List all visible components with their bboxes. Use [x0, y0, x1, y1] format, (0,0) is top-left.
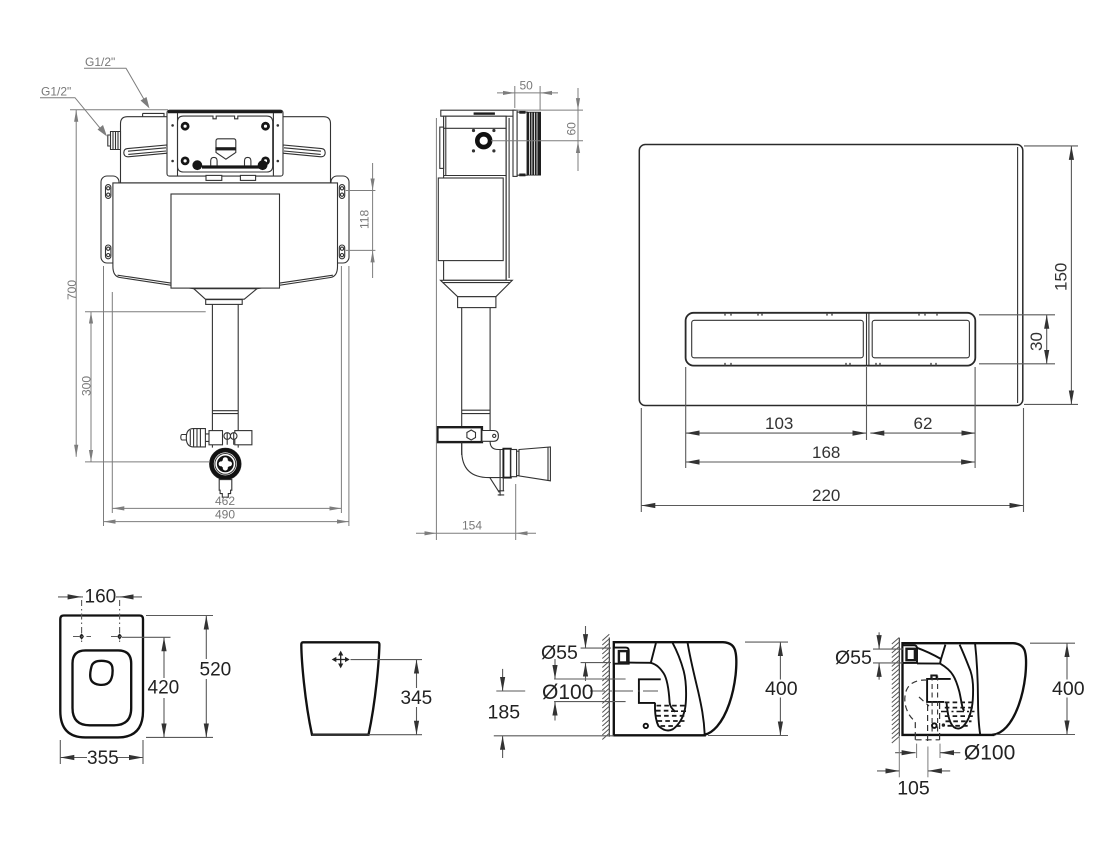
svg-text:154: 154: [462, 519, 482, 533]
svg-text:462: 462: [215, 494, 235, 508]
svg-text:420: 420: [148, 678, 180, 699]
svg-text:400: 400: [1052, 678, 1085, 700]
svg-text:Ø100: Ø100: [542, 681, 593, 704]
svg-text:30: 30: [1027, 332, 1046, 351]
svg-text:300: 300: [80, 376, 94, 396]
svg-text:62: 62: [914, 414, 933, 433]
svg-text:520: 520: [200, 660, 232, 681]
svg-text:220: 220: [812, 486, 840, 505]
svg-text:160: 160: [85, 587, 117, 608]
svg-text:490: 490: [215, 508, 235, 522]
svg-text:150: 150: [1052, 263, 1071, 291]
svg-text:Ø55: Ø55: [835, 647, 872, 669]
svg-text:103: 103: [765, 414, 793, 433]
svg-text:700: 700: [65, 280, 79, 300]
svg-text:G1/2": G1/2": [85, 55, 115, 69]
svg-text:Ø55: Ø55: [541, 642, 578, 664]
svg-text:185: 185: [488, 702, 521, 724]
svg-text:105: 105: [897, 778, 930, 800]
svg-text:Ø100: Ø100: [964, 741, 1015, 764]
svg-text:118: 118: [357, 210, 371, 229]
svg-text:168: 168: [812, 443, 840, 462]
svg-text:400: 400: [765, 678, 798, 700]
svg-text:50: 50: [520, 79, 534, 93]
svg-text:355: 355: [87, 748, 119, 769]
svg-text:345: 345: [401, 688, 433, 709]
svg-text:60: 60: [564, 122, 578, 136]
svg-text:G1/2": G1/2": [41, 85, 71, 99]
